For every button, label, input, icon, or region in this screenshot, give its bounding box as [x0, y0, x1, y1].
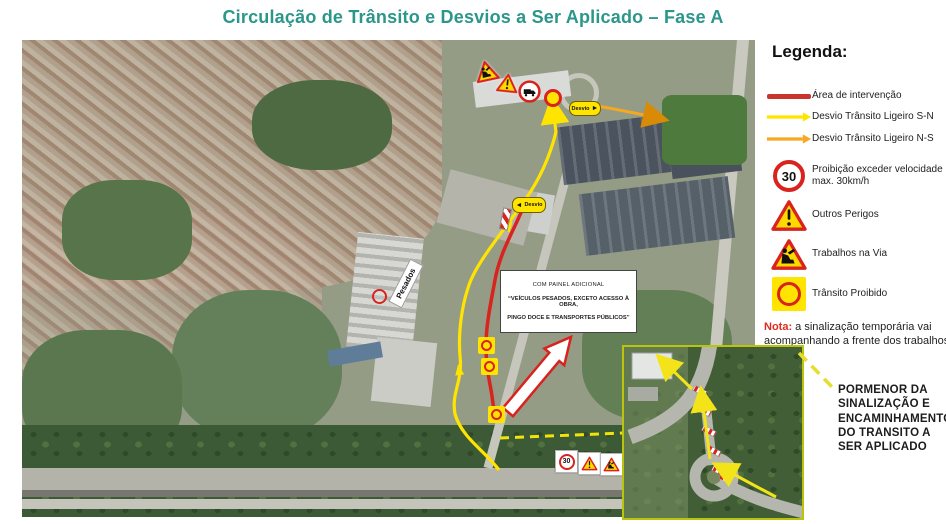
legend-label: Desvio Trânsito Ligeiro N-S [812, 133, 934, 146]
panel-line-1: COM PAINEL ADICIONAL [504, 282, 633, 288]
terrain-patch [252, 80, 392, 170]
speed-limit-30-sign: 30 [555, 450, 578, 473]
note-text: a sinalização temporária vai acompanhand… [764, 321, 946, 347]
roadworks-sign [600, 453, 623, 476]
detour-plate-right: Desvio ► [569, 101, 601, 116]
exclamation-triangle-icon [766, 199, 812, 232]
legend-item-roadworks: Trabalhos na Via [766, 238, 887, 271]
roadworks-triangle-icon [766, 238, 812, 271]
no-traffic-sign [478, 337, 495, 354]
detour-label: Desvio [572, 106, 590, 112]
legend-item-speed-30: 30 Proibição exceder velocidade max. 30k… [766, 160, 946, 192]
legend-label: Desvio Trânsito Ligeiro S-N [812, 111, 934, 124]
terrain-patch [62, 180, 192, 280]
legend-item-detour-sn: Desvio Trânsito Ligeiro S-N [766, 111, 934, 124]
no-traffic-sign [544, 89, 562, 107]
sports-field [662, 95, 747, 165]
no-traffic-sign [488, 406, 505, 423]
other-dangers-sign [578, 452, 601, 475]
arrow-right-icon: ► [592, 105, 599, 112]
legend-label: Trabalhos na Via [812, 248, 887, 261]
arrow-left-icon: ◄ [516, 202, 523, 209]
legend-heading: Legenda: [772, 42, 848, 62]
legend-item-other-dangers: Outros Perigos [766, 199, 879, 232]
legend-item-intervention: Área de intervenção [766, 90, 902, 103]
orange-arrow-icon [766, 133, 812, 145]
no-heavy-vehicles-sign [518, 80, 541, 103]
traffic-plan-page: Circulação de Trânsito e Desvios a Ser A… [0, 0, 946, 524]
no-traffic-icon [766, 277, 812, 311]
yellow-route-arrowhead [454, 363, 464, 375]
legend-label: Outros Perigos [812, 209, 879, 222]
panel-line-2: “VEÍCULOS PESADOS, EXCETO ACESSO À OBRA, [504, 296, 633, 308]
heavy-vehicles-ring-sign [372, 289, 387, 304]
page-title: Circulação de Trânsito e Desvios a Ser A… [0, 7, 946, 28]
red-line-icon [766, 94, 812, 99]
inset-overlay [624, 347, 802, 518]
detail-inset [622, 345, 804, 520]
terrain-patch [172, 290, 342, 440]
note-prefix: Nota: [764, 321, 792, 333]
panel-line-3: PINGO DOCE E TRANSPORTES PÚBLICOS” [504, 315, 633, 321]
legend-item-detour-ns: Desvio Trânsito Ligeiro N-S [766, 133, 934, 146]
parking-lot [628, 387, 658, 401]
inset-caption: PORMENOR DA SINALIZAÇÃO E ENCAMINHAMENTO… [838, 383, 946, 454]
legend-label: Proibição exceder velocidade max. 30km/h [812, 164, 946, 189]
no-traffic-sign [481, 358, 498, 375]
speed-30-value: 30 [559, 454, 575, 470]
other-dangers-sign [495, 72, 520, 94]
speed-limit-30-icon: 30 [766, 160, 812, 192]
yellow-arrow-icon [766, 111, 812, 123]
legend-label: Área de intervenção [812, 90, 902, 103]
detour-label: Desvio [524, 202, 542, 208]
legend-item-no-traffic: Trânsito Proibido [766, 277, 887, 311]
detour-plate-left: ◄ Desvio [512, 197, 546, 213]
additional-panel-note: COM PAINEL ADICIONAL “VEÍCULOS PESADOS, … [500, 270, 637, 333]
building-roof [579, 176, 735, 256]
legend-label: Trânsito Proibido [812, 288, 887, 301]
